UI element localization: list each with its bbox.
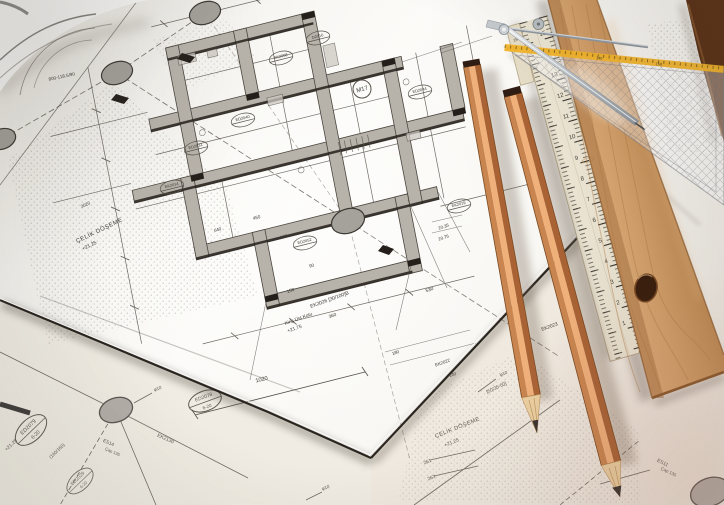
blueprint-photo: ED2031 EK2014 ED2040 EK2008 D2016 ED2044… [0,0,724,505]
photo-grade [0,0,724,505]
photo-canvas: ED2031 EK2014 ED2040 EK2008 D2016 ED2044… [0,0,724,505]
